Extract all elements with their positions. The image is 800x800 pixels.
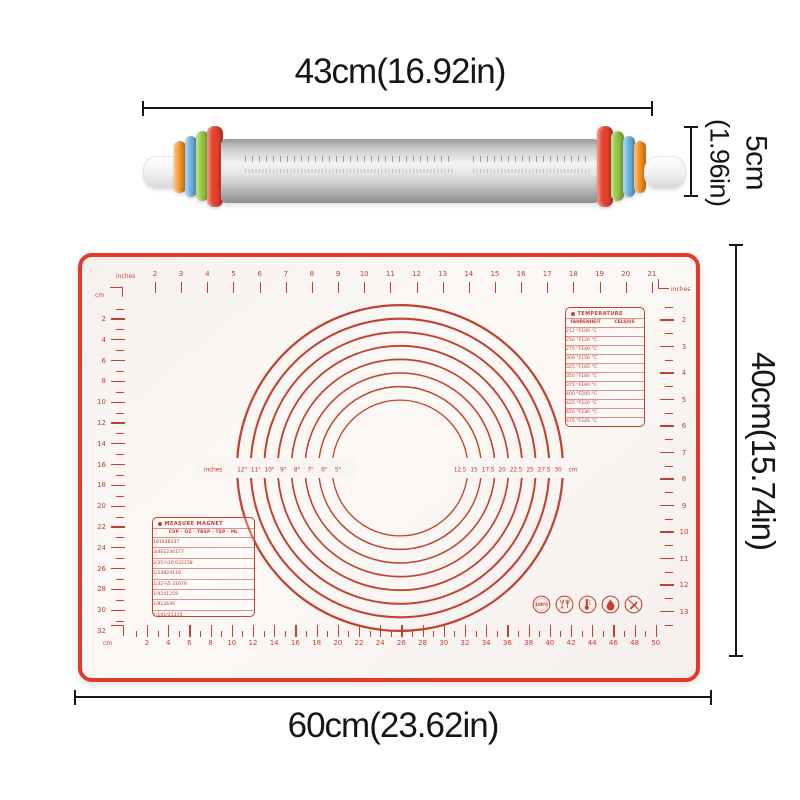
bottom-ruler-tick — [507, 625, 508, 637]
table-cell: 1/4 — [153, 590, 160, 599]
table-cell: 10.6 — [168, 559, 178, 568]
left-ruler-tick — [111, 589, 125, 590]
top-ruler-tick — [207, 282, 208, 293]
table-cell: 180 °C — [581, 373, 597, 381]
left-ruler-minor-tick — [116, 413, 124, 414]
bottom-ruler-number: 18 — [308, 639, 326, 647]
top-ruler-number: 9 — [330, 270, 346, 278]
top-ruler-tick — [364, 282, 365, 293]
temperature-conversion-table: TEMPERATUREFAHRENHEITCELSIUS212 °F100 °C… — [565, 307, 645, 427]
bottom-ruler-tick — [465, 625, 466, 637]
right-ruler-number: 12 — [676, 581, 692, 589]
table-cell: 150 °C — [581, 355, 597, 363]
left-ruler-number: 10 — [90, 398, 106, 406]
right-ruler-minor-tick — [665, 360, 673, 361]
top-ruler-number: 19 — [592, 270, 608, 278]
right-ruler-tick — [660, 558, 674, 559]
right-ruler-minor-tick — [665, 386, 673, 387]
left-ruler-tick — [111, 381, 125, 382]
left-ruler-tick — [111, 422, 125, 423]
bottom-ruler-minor-tick — [370, 631, 371, 637]
left-ruler-minor-tick — [116, 475, 124, 476]
mat-width-dimension-line — [74, 696, 712, 698]
left-ruler-number: 32 — [90, 627, 106, 635]
dimension-end-tick — [710, 690, 712, 705]
left-ruler-number: 20 — [90, 502, 106, 510]
bottom-ruler-minor-tick — [624, 631, 625, 637]
bottom-ruler-minor-tick — [582, 631, 583, 637]
bottom-ruler-minor-tick — [285, 631, 286, 637]
right-ruler-number: 8 — [676, 475, 692, 483]
top-ruler-tick — [573, 282, 574, 293]
table-row: 300 °F150 °C — [566, 354, 644, 363]
table-cell: 375 °F — [566, 382, 581, 390]
bottom-ruler-number: 8 — [202, 639, 220, 647]
table-cell: 205 °C — [581, 391, 597, 399]
top-ruler-number: 12 — [409, 270, 425, 278]
svg-text:100%: 100% — [535, 602, 549, 607]
table-cell: 190 °C — [581, 382, 597, 390]
pin-ruler-markings — [245, 169, 453, 173]
left-ruler-minor-tick — [116, 579, 124, 580]
top-ruler-number: 20 — [618, 270, 634, 278]
left-ruler-number: 18 — [90, 481, 106, 489]
table-cell: 425 °F — [566, 400, 581, 408]
right-ruler-number: 11 — [676, 555, 692, 563]
dimension-end-tick — [74, 690, 76, 705]
bottom-ruler-unit: cm — [103, 640, 112, 647]
right-ruler-minor-tick — [665, 307, 673, 308]
table-cell: 100 °C — [581, 328, 597, 336]
circle-cm-label: 27.5 — [538, 467, 551, 474]
bottom-ruler-minor-tick — [158, 631, 159, 637]
bottom-ruler-tick — [168, 625, 169, 637]
table-cell: 250 °F — [566, 337, 581, 345]
ruler-corner-bracket — [658, 279, 669, 289]
right-ruler-minor-tick — [665, 439, 673, 440]
100-percent-badge: 100% — [532, 595, 551, 614]
right-ruler-minor-tick — [665, 545, 673, 546]
right-ruler-minor-tick — [665, 598, 673, 599]
bottom-ruler-minor-tick — [412, 631, 413, 637]
table-header-cell: FAHRENHEIT — [566, 319, 605, 327]
left-ruler-minor-tick — [116, 371, 124, 372]
right-ruler-minor-tick — [665, 625, 673, 626]
right-ruler-tick — [660, 505, 674, 506]
top-ruler-tick — [652, 282, 653, 293]
bottom-ruler-minor-tick — [645, 631, 646, 637]
bottom-ruler-tick — [592, 625, 593, 637]
left-ruler-number: 4 — [90, 336, 106, 344]
bottom-ruler-tick — [529, 625, 530, 637]
table-header-cell: CELSIUS — [605, 319, 644, 327]
pin-ruler-markings — [473, 156, 591, 162]
table-cell: 230 °C — [581, 409, 597, 417]
bottom-ruler-minor-tick — [603, 631, 604, 637]
circle-cm-label: 15 — [470, 467, 478, 474]
bottom-ruler-number: 44 — [583, 639, 601, 647]
left-ruler-number: 16 — [90, 461, 106, 469]
table-cell: 400 °F — [566, 391, 581, 399]
bottom-ruler-minor-tick — [242, 631, 243, 637]
table-cell: 5⅓ — [160, 559, 167, 568]
left-ruler-minor-tick — [116, 558, 124, 559]
right-ruler-tick — [660, 452, 674, 453]
table-title: MEASURE MAGNET — [153, 518, 254, 528]
top-ruler-tick — [469, 282, 470, 293]
table-row: 450 °F230 °C — [566, 408, 644, 417]
bottom-ruler-tick — [380, 625, 381, 637]
circle-inch-label: 11" — [251, 467, 261, 474]
top-ruler-tick — [233, 282, 234, 293]
table-row: 1/24824118 — [153, 568, 254, 578]
circle-inch-label: 12" — [237, 467, 247, 474]
pin-length-label: 43cm(16.92in) — [200, 52, 600, 92]
table-cell: 1/16 — [153, 611, 163, 617]
left-ruler-minor-tick — [116, 517, 124, 518]
left-ruler-minor-tick — [116, 496, 124, 497]
bottom-ruler-minor-tick — [560, 631, 561, 637]
table-cell: 1/2 — [163, 611, 170, 617]
left-ruler-minor-tick — [116, 454, 124, 455]
table-cell: 2⅔ — [160, 580, 167, 589]
right-ruler-tick — [660, 611, 674, 612]
bottom-ruler-minor-tick — [306, 631, 307, 637]
table-row: 500 °F260 °C — [566, 426, 644, 427]
bottom-ruler-number: 28 — [414, 639, 432, 647]
table-title-text: MEASURE MAGNET — [165, 521, 224, 527]
bottom-ruler-minor-tick — [497, 631, 498, 637]
left-ruler-tick — [111, 506, 125, 507]
bottom-ruler-number: 38 — [520, 639, 538, 647]
table-cell: 5.3 — [168, 580, 175, 589]
dimension-end-tick — [729, 244, 743, 246]
left-ruler-tick — [111, 526, 125, 527]
right-ruler-number: 2 — [676, 316, 692, 324]
top-ruler-tick — [181, 282, 182, 293]
circle-cm-label: 17.5 — [482, 467, 495, 474]
left-ruler-tick — [111, 443, 125, 444]
table-row: 250 °F120 °C — [566, 336, 644, 345]
circle-cm-label: 22.5 — [510, 467, 523, 474]
left-ruler-number: 22 — [90, 523, 106, 531]
left-ruler-number: 6 — [90, 357, 106, 365]
bottom-ruler-number: 42 — [562, 639, 580, 647]
bottom-ruler-tick — [656, 625, 657, 637]
no-knife-icon — [624, 595, 643, 614]
table-cell: 59 — [172, 590, 178, 599]
product-dimension-diagram: 43cm(16.92in) 5cm (1.96in) inches12"11"1… — [0, 0, 800, 800]
top-ruler-unit-left: inches — [116, 273, 135, 280]
table-title-dot — [158, 522, 162, 526]
bottom-ruler-tick — [423, 625, 424, 637]
bottom-ruler-number: 12 — [244, 639, 262, 647]
right-ruler-tick — [660, 372, 674, 373]
bottom-ruler-number: 6 — [180, 639, 198, 647]
right-ruler-tick — [660, 584, 674, 585]
dimension-end-tick — [684, 126, 698, 128]
bottom-ruler-minor-tick — [348, 631, 349, 637]
left-ruler-number: 26 — [90, 565, 106, 573]
right-ruler-tick — [660, 531, 674, 532]
bottom-ruler-number: 24 — [371, 639, 389, 647]
bottom-ruler-minor-tick — [518, 631, 519, 637]
top-ruler-tick — [521, 282, 522, 293]
table-row: 425 °F220 °C — [566, 399, 644, 408]
left-ruler-tick — [111, 610, 125, 611]
bottom-ruler-number: 50 — [647, 639, 665, 647]
table-row: 325 °F165 °C — [566, 363, 644, 372]
thermometer-icon-art — [578, 595, 597, 614]
rolling-pin-handle-right — [644, 156, 686, 189]
table-cell: 212 °F — [566, 328, 581, 336]
circle-inch-label: 6" — [321, 467, 328, 474]
right-ruler-minor-tick — [665, 492, 673, 493]
ruler-corner-bracket — [110, 287, 123, 297]
mat-height-dimension-line — [735, 244, 737, 657]
right-ruler-number: 6 — [676, 422, 692, 430]
rolling-pin-barrel — [221, 139, 599, 203]
bottom-ruler-number: 10 — [223, 639, 241, 647]
bottom-ruler-tick — [635, 625, 636, 637]
table-row: 1/4241259 — [153, 589, 254, 599]
dimension-end-tick — [729, 655, 743, 657]
table-cell: 1/3 — [153, 580, 160, 589]
table-cell: 158 — [184, 559, 193, 568]
right-ruler-number: 10 — [676, 528, 692, 536]
bottom-ruler-tick — [253, 625, 254, 637]
bottom-ruler-tick — [211, 625, 212, 637]
top-ruler-number: 5 — [225, 270, 241, 278]
table-title: TEMPERATURE — [566, 308, 644, 318]
top-ruler-tick — [390, 282, 391, 293]
table-cell: 177 — [175, 548, 184, 557]
top-ruler-tick — [260, 282, 261, 293]
bottom-ruler-number: 14 — [265, 639, 283, 647]
circle-inch-label: 8" — [294, 467, 301, 474]
bottom-ruler-minor-tick — [327, 631, 328, 637]
top-ruler-tick — [338, 282, 339, 293]
flame-icon-art — [601, 595, 620, 614]
circle-unit-cm: cm — [569, 467, 578, 474]
right-ruler-minor-tick — [665, 333, 673, 334]
top-ruler-number: 10 — [356, 270, 372, 278]
bottom-ruler-minor-tick — [454, 631, 455, 637]
table-cell: 165 °C — [581, 364, 597, 372]
bottom-ruler-tick — [444, 625, 445, 637]
table-cell: 300 °F — [566, 355, 581, 363]
bottom-ruler-number: 34 — [477, 639, 495, 647]
top-ruler-number: 13 — [435, 270, 451, 278]
right-ruler-number: 3 — [676, 343, 692, 351]
bottom-ruler-minor-tick — [136, 631, 137, 637]
top-ruler-unit-right: inches — [671, 286, 690, 293]
top-ruler-number: 6 — [252, 270, 268, 278]
table-row: 1/161/21315 — [153, 610, 254, 617]
circle-inch-label: 7" — [307, 467, 314, 474]
top-ruler-number: 7 — [278, 270, 294, 278]
circle-unit-inches: inches — [204, 467, 222, 474]
top-ruler-number: 18 — [565, 270, 581, 278]
table-row: 400 °F205 °C — [566, 390, 644, 399]
table-cell: 325 °F — [566, 364, 581, 372]
circle-inch-label: 10" — [265, 467, 275, 474]
circle-cm-label: 12.5 — [454, 467, 467, 474]
bottom-ruler-number: 2 — [138, 639, 156, 647]
bottom-ruler-number: 46 — [604, 639, 622, 647]
table-cell: 118 — [172, 569, 181, 578]
top-ruler-tick — [286, 282, 287, 293]
table-cell: 237 — [171, 538, 180, 547]
top-ruler-tick — [155, 282, 156, 293]
table-cell: 3/4 — [153, 548, 160, 557]
pin-ruler-markings — [473, 169, 591, 173]
left-ruler-number: 28 — [90, 585, 106, 593]
top-ruler-tick — [312, 282, 313, 293]
left-ruler-number: 14 — [90, 440, 106, 448]
bottom-ruler-minor-tick — [391, 631, 392, 637]
table-cell: 140 °C — [581, 346, 597, 354]
table-cell: 1/2 — [153, 569, 160, 578]
bottom-ruler-tick — [401, 625, 402, 637]
table-cell: 1/8 — [153, 600, 160, 609]
thermometer-icon — [578, 595, 597, 614]
top-ruler-unit-corner: cm — [95, 292, 104, 299]
bottom-ruler-number: 32 — [456, 639, 474, 647]
left-ruler-tick — [111, 568, 125, 569]
table-cell: 2/3 — [153, 559, 160, 568]
left-ruler-number: 8 — [90, 377, 106, 385]
100-percent-badge-art: 100% — [532, 595, 551, 614]
table-header: CUP - OZ - TBSP - TSP - ML — [153, 528, 254, 537]
table-row: 181648237 — [153, 537, 254, 547]
no-knife-icon-art — [624, 595, 643, 614]
table-row: 375 °F190 °C — [566, 381, 644, 390]
right-ruler-number: 5 — [676, 396, 692, 404]
left-ruler-tick — [111, 402, 125, 403]
circle-cm-label: 20 — [498, 467, 506, 474]
right-ruler-tick — [660, 346, 674, 347]
bottom-ruler-number: 30 — [435, 639, 453, 647]
bottom-ruler-tick — [338, 625, 339, 637]
bottom-ruler-tick — [147, 625, 148, 637]
table-cell: 275 °F — [566, 346, 581, 354]
top-ruler-number: 2 — [147, 270, 163, 278]
bottom-ruler-minor-tick — [179, 631, 180, 637]
right-ruler-tick — [660, 425, 674, 426]
ruler-corner-bracket — [111, 625, 124, 636]
dimension-end-tick — [651, 101, 653, 116]
bottom-ruler-minor-tick — [433, 631, 434, 637]
bottom-ruler-tick — [486, 625, 487, 637]
baking-mat: inches12"11"10"9"8"7"6"5"12.51517.52022.… — [78, 253, 700, 682]
top-ruler-number: 17 — [539, 270, 555, 278]
bottom-ruler-tick — [571, 625, 572, 637]
table-cell: 450 °F — [566, 409, 581, 417]
bottom-ruler-number: 22 — [350, 639, 368, 647]
bottom-ruler-minor-tick — [539, 631, 540, 637]
table-cell: 350 °F — [566, 373, 581, 381]
circle-inch-label: 9" — [280, 467, 287, 474]
right-ruler-minor-tick — [665, 466, 673, 467]
left-ruler-minor-tick — [116, 621, 124, 622]
bottom-ruler-tick — [189, 625, 190, 637]
circle-cm-label: 25 — [526, 467, 534, 474]
bottom-ruler-tick — [295, 625, 296, 637]
right-ruler-number: 9 — [676, 502, 692, 510]
table-row: 212 °F100 °C — [566, 327, 644, 336]
right-ruler-number: 4 — [676, 369, 692, 377]
right-ruler-tick — [660, 478, 674, 479]
pin-length-dimension-line — [142, 107, 653, 109]
table-header: FAHRENHEITCELSIUS — [566, 318, 644, 327]
left-ruler-minor-tick — [116, 329, 124, 330]
top-ruler-number: 4 — [199, 270, 215, 278]
top-ruler-number: 11 — [382, 270, 398, 278]
circle-inch-label: 5" — [335, 467, 342, 474]
pin-diameter-value: 5cm — [739, 135, 772, 190]
left-ruler-tick — [111, 360, 125, 361]
right-ruler-minor-tick — [665, 519, 673, 520]
bottom-ruler-tick — [613, 625, 614, 637]
top-ruler-tick — [495, 282, 496, 293]
right-ruler-minor-tick — [665, 572, 673, 573]
right-ruler-tick — [660, 399, 674, 400]
flame-icon — [601, 595, 620, 614]
top-ruler-tick — [600, 282, 601, 293]
table-row: 3/461236177 — [153, 547, 254, 557]
left-ruler-minor-tick — [116, 309, 124, 310]
dimension-end-tick — [142, 101, 144, 116]
bottom-ruler-tick — [550, 625, 551, 637]
table-cell: 30 — [169, 600, 175, 609]
bottom-ruler-number: 20 — [329, 639, 347, 647]
top-ruler-number: 21 — [644, 270, 660, 278]
pin-diameter-dimension-line — [690, 126, 692, 197]
top-ruler-number: 15 — [487, 270, 503, 278]
top-ruler-number: 14 — [461, 270, 477, 278]
table-cell: 245 °C — [581, 418, 597, 426]
mat-width-label: 60cm(23.62in) — [143, 706, 643, 746]
table-title-text: TEMPERATURE — [578, 311, 623, 317]
bottom-ruler-tick — [232, 625, 233, 637]
bottom-ruler-number: 36 — [498, 639, 516, 647]
table-cell: 475 °F — [566, 418, 581, 426]
table-cell: 220 °C — [581, 400, 597, 408]
bottom-ruler-minor-tick — [476, 631, 477, 637]
left-ruler-tick — [111, 339, 125, 340]
left-ruler-number: 12 — [90, 419, 106, 427]
pin-diameter-label: 5cm (1.96in) — [702, 88, 773, 238]
table-row: 275 °F140 °C — [566, 345, 644, 354]
top-ruler-tick — [547, 282, 548, 293]
table-row: 475 °F245 °C — [566, 417, 644, 426]
bottom-ruler-number: 26 — [392, 639, 410, 647]
top-ruler-tick — [443, 282, 444, 293]
table-header-cell: CUP - OZ - TBSP - TSP - ML — [153, 529, 254, 537]
circle-cm-label: 30 — [554, 467, 562, 474]
table-cell: 120 °C — [581, 337, 597, 345]
left-ruler-minor-tick — [116, 433, 124, 434]
table-title-dot — [571, 312, 575, 316]
bottom-ruler-tick — [274, 625, 275, 637]
bottom-ruler-number: 40 — [541, 639, 559, 647]
left-ruler-minor-tick — [116, 537, 124, 538]
table-row: 1/812630 — [153, 599, 254, 609]
left-ruler-minor-tick — [116, 350, 124, 351]
top-ruler-number: 16 — [513, 270, 529, 278]
table-row: 1/32⅔5.31679 — [153, 579, 254, 589]
